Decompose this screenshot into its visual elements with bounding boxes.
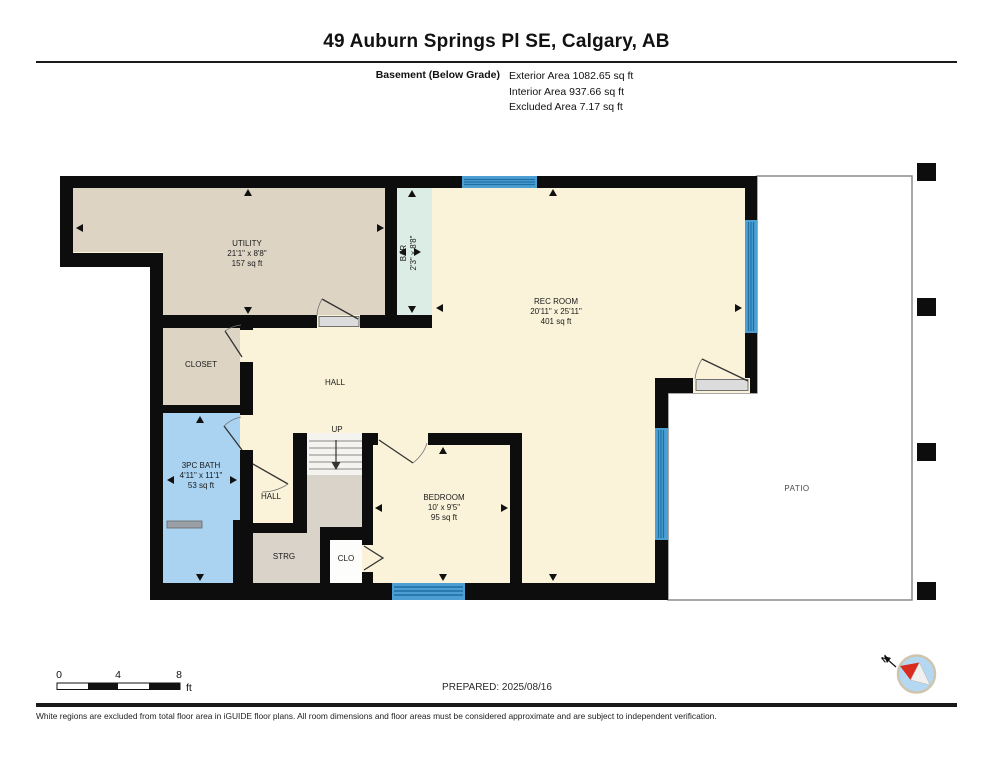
room-label-bar: BAR: [399, 245, 408, 262]
wall-left-lower: [150, 253, 163, 600]
room-label-hall: HALL: [325, 378, 346, 387]
understair-fill: [307, 475, 362, 533]
patio-post: [917, 298, 936, 316]
room-label-storage: STRG: [273, 552, 295, 561]
bath-vanity: [167, 521, 202, 528]
room-label-utility: UTILITY: [232, 239, 262, 248]
window-right-lower: [655, 428, 668, 540]
scale-unit: ft: [186, 682, 192, 694]
room-dims-bath: 4'11" x 11'1": [180, 471, 223, 480]
stairs-up-label: UP: [331, 425, 342, 434]
room-dims-bar: 2'3" x 8'8": [409, 235, 418, 270]
scale-tick-0: 0: [56, 669, 62, 681]
room-area-bath: 53 sq ft: [188, 481, 215, 490]
scale-bar-segment: [149, 683, 180, 690]
wall-bedroom-right: [510, 433, 522, 583]
footer-divider: [36, 703, 957, 707]
wall-utility-bottom: [163, 315, 432, 328]
wall-bedroom-left: [362, 572, 373, 583]
wall-bar-divider: [385, 183, 397, 315]
window-top: [462, 176, 537, 188]
scale-bar-segment: [88, 683, 118, 690]
room-label-patio: PATIO: [784, 484, 809, 493]
room-label-hall-lower: HALL: [261, 492, 282, 501]
compass: N: [879, 653, 935, 693]
wall-clo-left: [320, 527, 330, 583]
door-gap: [378, 433, 428, 445]
patio-post: [917, 443, 936, 461]
room-area-rec: 401 sq ft: [541, 317, 572, 326]
scale-bar: 0 4 8 ft: [56, 669, 192, 694]
window-bedroom: [392, 583, 465, 600]
scale-tick-8: 8: [176, 669, 182, 681]
floorplan-drawing: UTILITY 21'1" x 8'8" 157 sq ft BAR 2'3" …: [0, 0, 993, 768]
room-dims-bedroom: 10' x 9'5": [428, 503, 460, 512]
scale-tick-4: 4: [115, 669, 121, 681]
room-label-rec: REC ROOM: [534, 297, 578, 306]
wall-stairs-left: [293, 433, 307, 523]
prepared-date: PREPARED: 2025/08/16: [442, 682, 552, 693]
wall-storage-top: [240, 523, 307, 533]
room-dims-rec: 20'11" x 25'11": [530, 307, 582, 316]
utility-room-fill: [163, 252, 397, 318]
room-area-bedroom: 95 sq ft: [431, 513, 458, 522]
wall-step: [60, 253, 163, 267]
wall-top: [60, 176, 757, 188]
patio-post: [917, 582, 936, 600]
window-right-upper: [745, 220, 757, 333]
floorplan-page: 49 Auburn Springs Pl SE, Calgary, AB Bas…: [0, 0, 993, 768]
wall-closet-bath-divider: [150, 405, 253, 413]
room-dims-utility: 21'1" x 8'8": [227, 249, 267, 258]
wall-closet-right: [240, 315, 253, 330]
room-area-utility: 157 sq ft: [232, 259, 263, 268]
room-label-bath: 3PC BATH: [182, 461, 221, 470]
patio-posts: [917, 163, 936, 600]
room-label-bedroom: BEDROOM: [423, 493, 465, 502]
door-slab: [696, 380, 748, 391]
room-label-closet: CLOSET: [185, 360, 217, 369]
patio-post: [917, 163, 936, 181]
room-label-clo: CLO: [338, 554, 354, 563]
door-slab: [319, 317, 359, 327]
bath-fill: [163, 413, 240, 583]
wall-bath-right: [240, 450, 253, 520]
disclaimer-text: White regions are excluded from total fl…: [36, 711, 717, 721]
